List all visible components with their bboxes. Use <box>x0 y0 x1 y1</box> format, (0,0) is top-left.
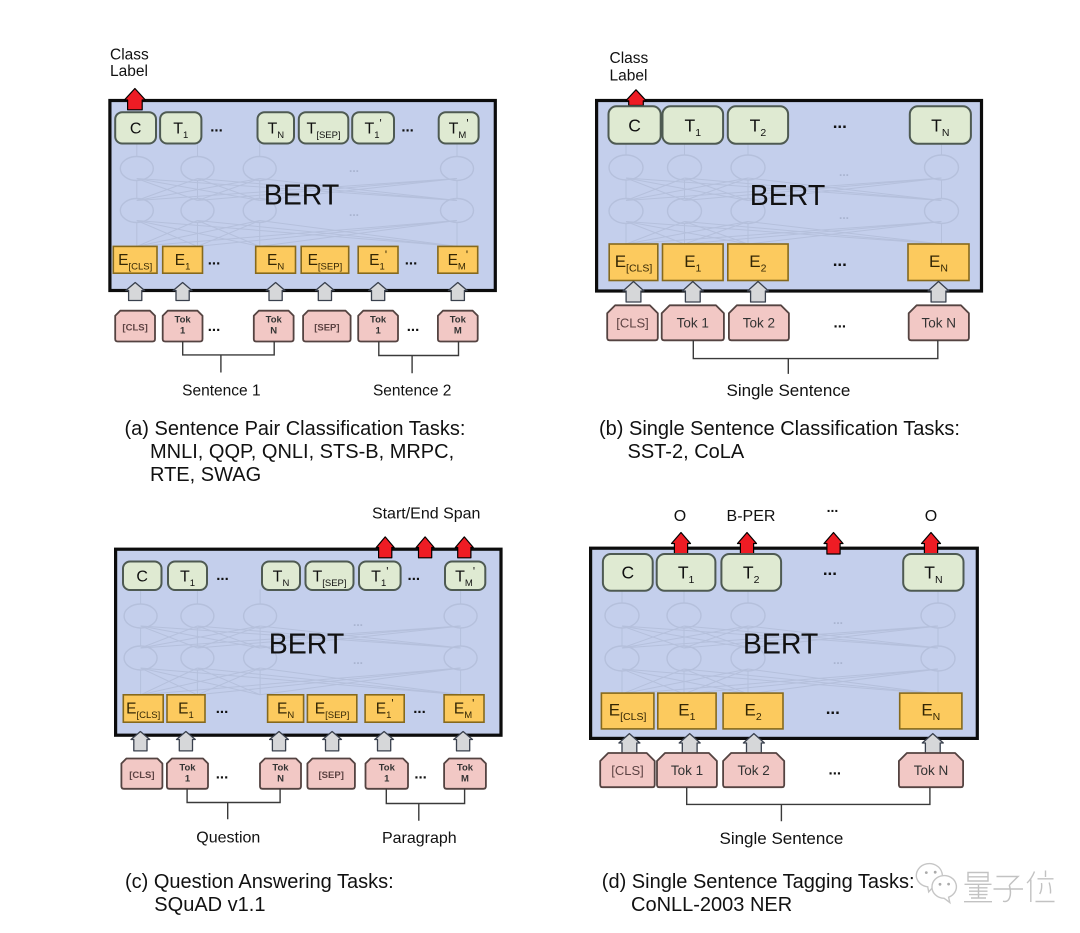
svg-text:C: C <box>628 115 641 135</box>
svg-text:(c) Question Answering Tasks:: (c) Question Answering Tasks: <box>125 871 394 893</box>
svg-text:...: ... <box>210 119 223 136</box>
svg-text:Label: Label <box>110 63 148 80</box>
svg-text:B-PER: B-PER <box>727 508 776 525</box>
svg-text:Tok 2: Tok 2 <box>737 763 769 778</box>
svg-text:Label: Label <box>610 68 648 85</box>
svg-text:BERT: BERT <box>269 629 345 661</box>
svg-text:Sentence 1: Sentence 1 <box>182 382 260 399</box>
svg-text:...: ... <box>833 653 843 667</box>
svg-text:Tok 2: Tok 2 <box>743 316 775 331</box>
svg-text:...: ... <box>834 315 847 332</box>
svg-text:Single Sentence: Single Sentence <box>726 381 850 400</box>
svg-text:RTE, SWAG: RTE, SWAG <box>150 464 261 486</box>
svg-text:...: ... <box>414 766 427 783</box>
svg-text:...: ... <box>839 208 849 222</box>
svg-text:(a) Sentence Pair Classificati: (a) Sentence Pair Classification Tasks: <box>125 418 466 440</box>
svg-text:...: ... <box>353 615 363 629</box>
svg-text:C: C <box>130 121 142 138</box>
svg-text:...: ... <box>408 567 421 584</box>
svg-text:Start/End Span: Start/End Span <box>372 506 481 523</box>
svg-text:[CLS]: [CLS] <box>122 323 147 334</box>
svg-text:...: ... <box>353 653 363 667</box>
svg-text:...: ... <box>349 205 359 219</box>
svg-text:...: ... <box>405 252 418 269</box>
svg-text:BERT: BERT <box>264 180 340 212</box>
svg-text:CoNLL-2003 NER: CoNLL-2003 NER <box>631 894 792 916</box>
svg-text:(b) Single Sentence Classifica: (b) Single Sentence Classification Tasks… <box>599 418 960 440</box>
svg-text:Class: Class <box>610 50 649 67</box>
svg-text:SST-2, CoLA: SST-2, CoLA <box>628 441 745 463</box>
svg-text:...: ... <box>413 700 426 717</box>
svg-text:C: C <box>621 563 634 583</box>
svg-text:BERT: BERT <box>743 629 819 661</box>
svg-text:MNLI, QQP, QNLI, STS-B, MRPC,: MNLI, QQP, QNLI, STS-B, MRPC, <box>150 441 454 463</box>
svg-text:...: ... <box>216 766 229 783</box>
svg-text:Tok 1: Tok 1 <box>677 316 709 331</box>
svg-text:...: ... <box>829 762 842 779</box>
svg-text:O: O <box>674 508 686 525</box>
svg-text:(d) Single Sentence Tagging Ta: (d) Single Sentence Tagging Tasks: <box>602 871 915 893</box>
svg-text:...: ... <box>401 119 414 136</box>
svg-text:...: ... <box>833 613 843 627</box>
svg-text:...: ... <box>833 251 847 270</box>
svg-text:C: C <box>136 568 148 585</box>
svg-text:Sentence 2: Sentence 2 <box>373 382 451 399</box>
svg-text:Paragraph: Paragraph <box>382 830 457 847</box>
svg-text:...: ... <box>216 567 229 584</box>
svg-text:[SEP]: [SEP] <box>319 770 344 781</box>
svg-text:...: ... <box>826 699 840 718</box>
svg-text:BERT: BERT <box>750 180 826 212</box>
svg-text:...: ... <box>208 318 221 335</box>
svg-text:Question: Question <box>196 830 260 847</box>
svg-text:Tok N: Tok N <box>914 763 949 778</box>
svg-text:[CLS]: [CLS] <box>616 316 649 331</box>
svg-text:...: ... <box>208 252 221 269</box>
svg-text:...: ... <box>839 165 849 179</box>
svg-text:Tok 1: Tok 1 <box>671 763 703 778</box>
svg-text:[CLS]: [CLS] <box>129 770 154 781</box>
svg-text:Tok N: Tok N <box>922 316 957 331</box>
svg-text:[CLS]: [CLS] <box>611 763 644 778</box>
svg-text:...: ... <box>216 700 229 717</box>
svg-text:...: ... <box>349 161 359 175</box>
svg-text:...: ... <box>833 113 847 132</box>
svg-text:O: O <box>925 508 937 525</box>
svg-text:...: ... <box>827 499 839 515</box>
svg-text:...: ... <box>823 560 837 579</box>
svg-text:Class: Class <box>110 47 149 64</box>
svg-text:...: ... <box>407 318 420 335</box>
svg-text:Single Sentence: Single Sentence <box>719 829 843 848</box>
svg-text:SQuAD v1.1: SQuAD v1.1 <box>154 894 265 916</box>
svg-text:[SEP]: [SEP] <box>314 323 339 334</box>
